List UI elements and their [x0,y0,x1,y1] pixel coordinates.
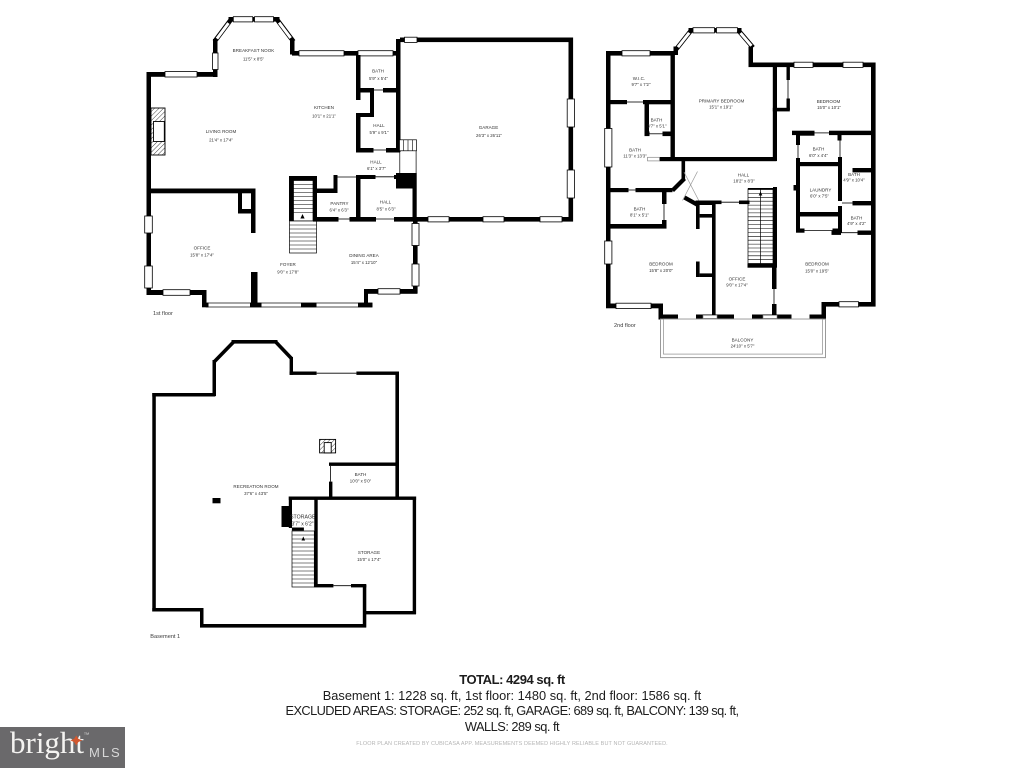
svg-text:BATH: BATH [848,172,860,177]
svg-text:FOYER: FOYER [280,262,296,267]
svg-text:HALL: HALL [738,172,750,177]
svg-text:6'1" x 3'7": 6'1" x 3'7" [367,166,386,171]
svg-text:26'3" x 26'11": 26'3" x 26'11" [476,133,502,138]
svg-text:10'0" x 5'0": 10'0" x 5'0" [350,478,372,483]
svg-text:9'7" x 7'2": 9'7" x 7'2" [631,82,650,87]
svg-text:BEDROOM: BEDROOM [817,99,841,104]
svg-text:6'0" x 4'4": 6'0" x 4'4" [809,153,828,158]
svg-text:15'8" x 20'0": 15'8" x 20'0" [649,268,673,273]
svg-text:KITCHEN: KITCHEN [314,105,334,110]
svg-text:W.I.C.: W.I.C. [633,76,646,81]
svg-text:LIVING ROOM: LIVING ROOM [206,129,237,134]
svg-text:BATH: BATH [355,472,367,477]
svg-text:BREAKFAST NOOK: BREAKFAST NOOK [233,48,275,53]
svg-text:15'0" x 10'1": 15'0" x 10'1" [817,105,841,110]
svg-text:15'4" x 12'10": 15'4" x 12'10" [351,260,378,265]
svg-text:4'9" x 4'2": 4'9" x 4'2" [847,221,866,226]
svg-text:2nd floor: 2nd floor [614,323,636,329]
svg-text:Basement 1: Basement 1 [150,634,180,640]
svg-text:BATH: BATH [372,69,384,74]
svg-text:4'9" x 10'4": 4'9" x 10'4" [843,177,865,182]
svg-text:STORAGE: STORAGE [358,550,380,555]
svg-text:9'0" x 17'8": 9'0" x 17'8" [277,270,299,275]
svg-text:8'5" x 6'3": 8'5" x 6'3" [376,207,395,212]
svg-text:OFFICE: OFFICE [729,276,746,281]
svg-text:BATH: BATH [851,216,863,221]
svg-text:OFFICE: OFFICE [194,246,211,251]
svg-text:BATH: BATH [813,146,825,151]
svg-text:11'3" x 13'3": 11'3" x 13'3" [623,153,647,158]
svg-text:18'2" x 8'3": 18'2" x 8'3" [733,178,755,183]
svg-text:1st floor: 1st floor [153,311,173,317]
svg-text:11'5" x 8'5": 11'5" x 8'5" [243,57,265,62]
svg-text:6'4" x 6'3": 6'4" x 6'3" [329,208,348,213]
svg-text:6'0" x 7'5": 6'0" x 7'5" [810,194,829,199]
svg-text:BATH: BATH [629,148,641,153]
svg-text:BEDROOM: BEDROOM [649,262,673,267]
svg-text:15'1" x 19'1": 15'1" x 19'1" [709,105,733,110]
svg-text:9'0" x 17'4": 9'0" x 17'4" [726,282,748,287]
svg-text:5'9" x 9'1": 5'9" x 9'1" [369,130,388,135]
svg-text:BATH: BATH [634,207,646,212]
svg-text:PANTRY: PANTRY [330,201,348,206]
svg-text:STORAGE: STORAGE [290,515,316,521]
svg-text:HALL: HALL [380,200,392,205]
svg-text:15'0" x 17'4": 15'0" x 17'4" [357,557,381,562]
svg-text:HALL: HALL [373,123,385,128]
svg-text:5'9" x 5'4": 5'9" x 5'4" [369,76,388,81]
svg-text:BEDROOM: BEDROOM [805,262,829,267]
svg-text:8'1" x 5'1": 8'1" x 5'1" [630,213,649,218]
svg-text:37'6" x 43'5": 37'6" x 43'5" [244,491,268,496]
svg-text:BATH: BATH [651,118,663,123]
svg-text:RECREATION ROOM: RECREATION ROOM [233,484,278,489]
svg-text:™: ™ [84,732,90,739]
svg-text:PRIMARY BEDROOM: PRIMARY BEDROOM [699,99,745,104]
svg-text:GARAGE: GARAGE [479,125,499,130]
svg-text:HALL: HALL [370,160,382,165]
svg-text:LAUNDRY: LAUNDRY [810,187,832,192]
svg-text:DINING AREA: DINING AREA [349,253,379,258]
svg-text:24'10" x 5'7": 24'10" x 5'7" [731,343,755,348]
svg-text:15'8" x 17'4": 15'8" x 17'4" [190,253,214,258]
svg-text:21'4" x 17'4": 21'4" x 17'4" [209,138,233,143]
svg-text:10'1" x 21'1": 10'1" x 21'1" [312,114,336,119]
svg-text:BALCONY: BALCONY [732,337,754,342]
svg-text:3'7" x 6'2": 3'7" x 6'2" [291,522,313,528]
svg-text:3'7" x 5'1": 3'7" x 5'1" [647,124,666,129]
svg-text:15'0" x 19'5": 15'0" x 19'5" [805,268,829,273]
